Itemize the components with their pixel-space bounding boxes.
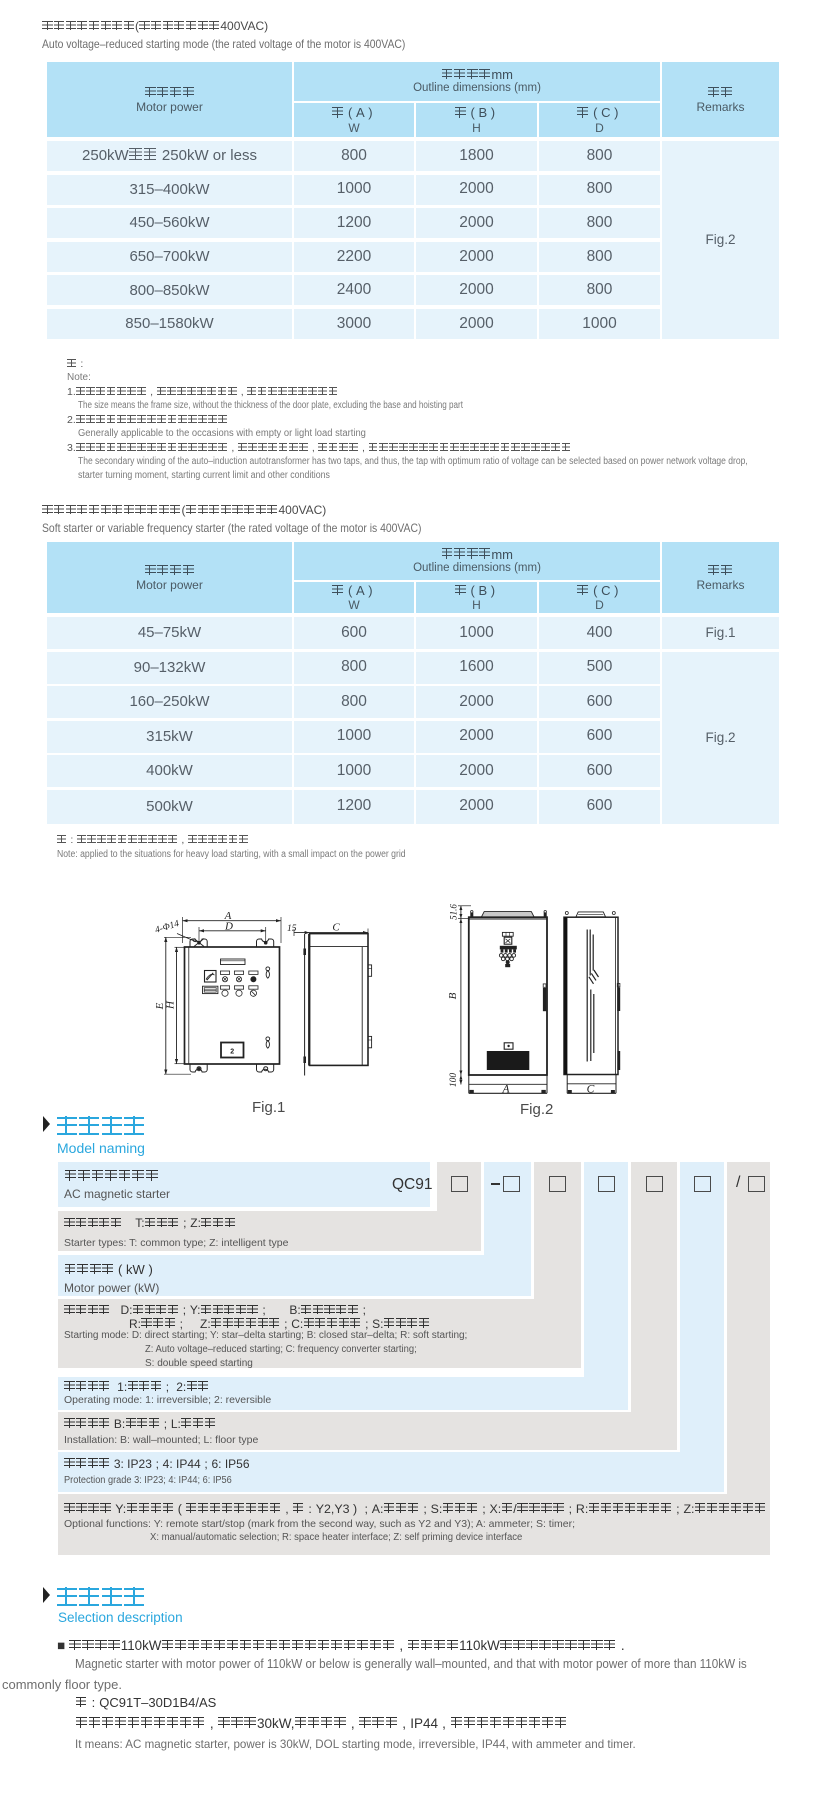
- svg-text:C: C: [332, 922, 340, 934]
- svg-text:4-Φ14: 4-Φ14: [154, 919, 181, 936]
- svg-text:2: 2: [230, 1048, 234, 1055]
- svg-text:15: 15: [287, 924, 297, 934]
- svg-text:51.6: 51.6: [449, 904, 459, 920]
- svg-text:A: A: [501, 1083, 510, 1095]
- svg-text:B: B: [447, 992, 459, 999]
- svg-text:100: 100: [449, 1073, 459, 1088]
- svg-text:D: D: [224, 920, 233, 932]
- svg-text:C: C: [587, 1083, 595, 1095]
- svg-text:H: H: [165, 1000, 177, 1010]
